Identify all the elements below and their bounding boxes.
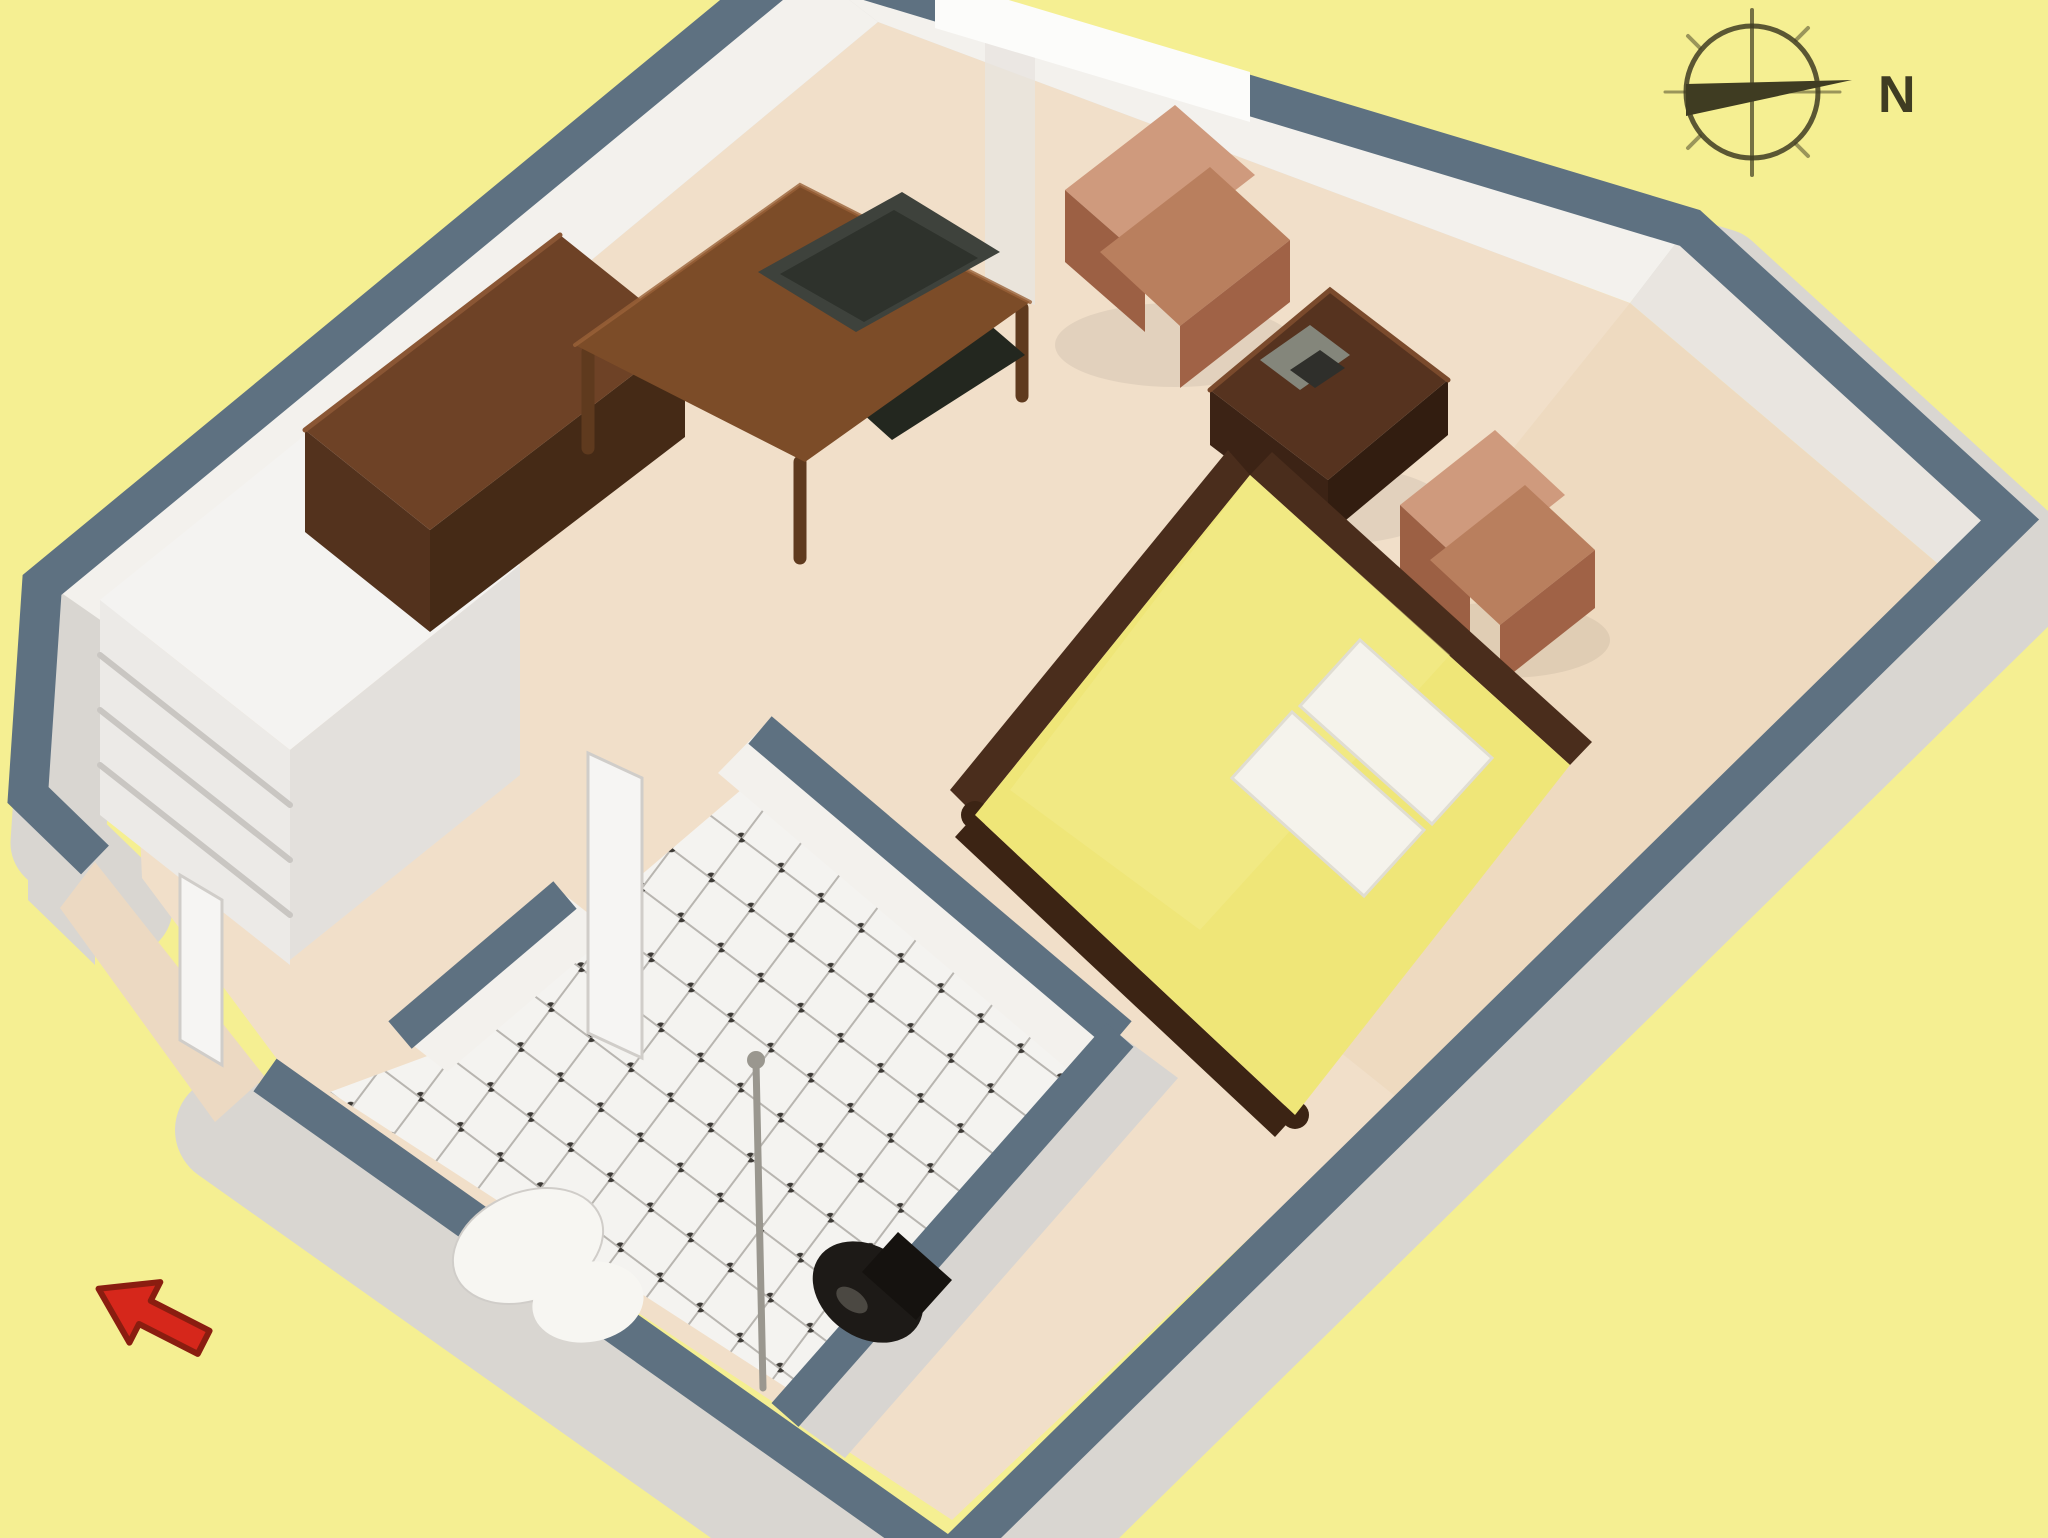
shower-head xyxy=(747,1051,765,1069)
floor-plan-canvas: N xyxy=(0,0,2048,1538)
wall-column-edge xyxy=(985,12,1035,305)
entrance-door-leaf xyxy=(180,875,222,1065)
floor-plan-image: N xyxy=(0,0,2048,1538)
bathroom-door-leaf xyxy=(588,753,642,1058)
north-label: N xyxy=(1878,66,1916,124)
